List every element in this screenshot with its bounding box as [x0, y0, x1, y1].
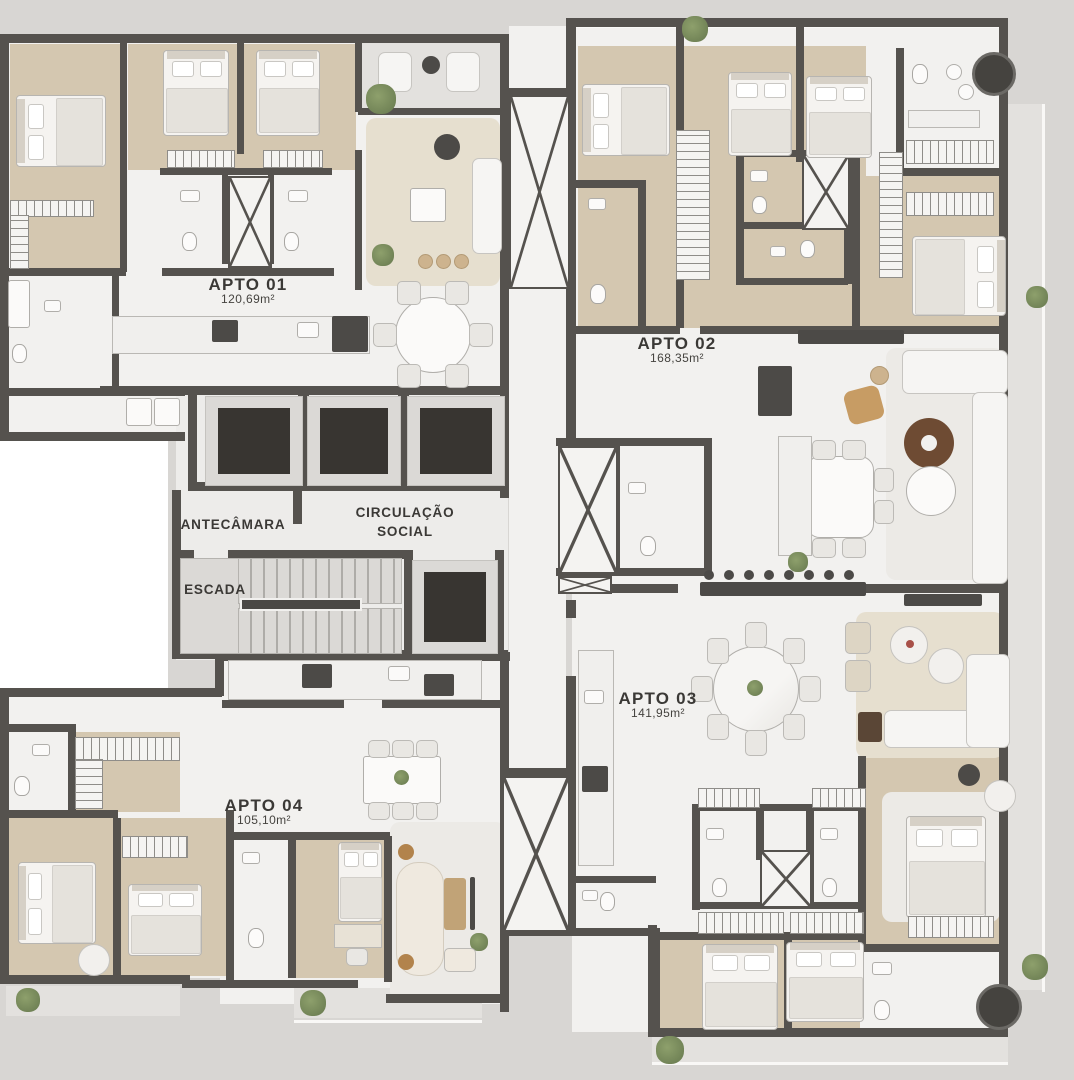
antechamber-label: ANTECÂMARA: [164, 515, 302, 535]
dining-chair: [416, 740, 438, 758]
armchair: [984, 780, 1016, 812]
coffee-table: [434, 134, 460, 160]
sink: [628, 482, 646, 494]
apto-01-label: APTO 01: [178, 276, 318, 293]
plant: [788, 552, 808, 572]
dining-chair: [812, 440, 836, 460]
pouf: [418, 254, 433, 269]
balcony-railing: [294, 1020, 482, 1023]
armchair: [446, 52, 480, 92]
circulation-label-line1: CIRCULAÇÃO: [335, 503, 475, 523]
double-bed: [18, 862, 96, 944]
closet: [790, 912, 864, 934]
dining-chair: [799, 676, 821, 702]
kitchen-cabinet: [424, 674, 454, 696]
double-bed: [16, 95, 106, 167]
dining-chair: [392, 740, 414, 758]
double-bed: [786, 942, 864, 1022]
tower-right-balcony-floor: [1008, 104, 1044, 990]
coffee-table: [410, 188, 446, 222]
plant: [300, 990, 326, 1016]
floor-plan: APTO 01 120,69m² APTO 02 168,35m² APTO 0…: [0, 0, 1074, 1080]
dining-chair: [783, 638, 805, 664]
bar-stool: [704, 570, 714, 580]
bar-stool: [824, 570, 834, 580]
toilet: [822, 878, 837, 897]
dining-chair: [373, 323, 397, 347]
bar-stool: [804, 570, 814, 580]
tv-console: [444, 878, 466, 930]
stair-handrail: [240, 598, 362, 611]
closet: [906, 192, 994, 216]
closet: [122, 836, 188, 858]
balcony-railing: [576, 25, 1002, 28]
sink: [872, 962, 892, 975]
dining-chair: [416, 802, 438, 820]
side-table: [422, 56, 440, 74]
dining-chair: [445, 281, 469, 305]
dining-chair: [707, 638, 729, 664]
toilet: [640, 536, 656, 556]
toilet: [752, 196, 767, 214]
sink: [820, 828, 838, 840]
toilet: [800, 240, 815, 258]
sink: [588, 198, 606, 210]
plant: [656, 1036, 684, 1064]
stair-landing: [180, 558, 240, 654]
dining-chair: [397, 364, 421, 388]
dining-chair: [812, 538, 836, 558]
toilet: [874, 1000, 890, 1020]
elevator-2: [307, 396, 401, 486]
bar-stool: [764, 570, 774, 580]
double-bed: [906, 816, 986, 918]
coffee-table: [904, 418, 954, 468]
bar-stool: [724, 570, 734, 580]
round-bathtub: [972, 52, 1016, 96]
double-bed: [702, 944, 778, 1030]
cooktop: [212, 320, 238, 342]
apto-02-area: 168,35m²: [607, 352, 747, 364]
dining-chair: [397, 281, 421, 305]
plant: [16, 988, 40, 1012]
desk: [334, 924, 382, 948]
double-bed: [912, 236, 1006, 316]
bar-stool: [744, 570, 754, 580]
apto-03-area: 141,95m²: [588, 707, 728, 719]
elevator-1: [205, 396, 303, 486]
apto-01-area: 120,69m²: [178, 293, 318, 305]
plant: [366, 84, 396, 114]
kitchen-cabinet: [332, 316, 368, 352]
plant: [1022, 954, 1048, 980]
toilet: [284, 232, 299, 251]
washer: [154, 398, 180, 426]
dining-table: [395, 297, 471, 373]
apto-03-label: APTO 03: [588, 690, 728, 707]
sink: [706, 828, 724, 840]
pouf: [436, 254, 451, 269]
duct-shaft: [228, 176, 272, 268]
closet: [676, 130, 710, 280]
round-bathtub: [976, 984, 1022, 1030]
dining-chair: [469, 323, 493, 347]
duct-shaft: [802, 154, 850, 230]
armchair: [444, 948, 476, 972]
pouf: [958, 764, 980, 786]
circulation-label-line2: SOCIAL: [335, 522, 475, 542]
dining-chair: [874, 500, 894, 524]
bar-stool: [844, 570, 854, 580]
toilet: [712, 878, 727, 897]
dining-chair: [368, 802, 390, 820]
duct-shaft: [509, 95, 570, 289]
closet: [812, 788, 866, 808]
sink: [180, 190, 200, 202]
dining-chair: [368, 740, 390, 758]
kitchen-counter: [578, 650, 614, 866]
closet: [167, 150, 235, 168]
balcony-railing: [1042, 104, 1045, 992]
stair-flight-lower: [238, 608, 402, 654]
closet: [879, 152, 903, 278]
closet: [10, 215, 29, 269]
closet: [908, 916, 994, 938]
apto-02-label: APTO 02: [607, 335, 747, 352]
dining-chair: [842, 538, 866, 558]
sofa: [472, 158, 502, 254]
dining-chair: [842, 440, 866, 460]
background-patch: [0, 441, 168, 691]
media-console: [904, 594, 982, 606]
plant: [1026, 286, 1048, 308]
sofa: [902, 350, 1008, 394]
sink: [582, 890, 598, 901]
dining-chair: [445, 364, 469, 388]
toilet: [590, 284, 606, 304]
bar-counter: [700, 582, 866, 596]
tower-bottom-terrace-floor: [652, 1037, 1008, 1065]
sofa-chaise: [972, 392, 1008, 584]
sink: [770, 246, 786, 257]
armchair: [78, 944, 110, 976]
toilet: [248, 928, 264, 948]
sink: [750, 170, 768, 182]
red-flower: [906, 640, 914, 648]
duct-shaft: [558, 576, 612, 594]
closet: [263, 150, 323, 168]
plant: [372, 244, 394, 266]
duct-shaft: [558, 446, 618, 574]
tv: [470, 877, 475, 930]
sink: [388, 666, 410, 681]
plant: [682, 16, 708, 42]
double-bed: [582, 84, 670, 156]
centerpiece-plant: [747, 680, 763, 696]
basin: [946, 64, 962, 80]
closet: [698, 788, 760, 808]
side-table: [398, 954, 414, 970]
closet: [906, 140, 994, 164]
centerpiece-plant: [394, 770, 409, 785]
sink: [32, 744, 50, 756]
sink: [288, 190, 308, 202]
stairs-label: ESCADA: [160, 580, 270, 600]
cooktop: [302, 664, 332, 688]
kitchen-cabinet: [758, 366, 792, 416]
toilet: [600, 892, 615, 911]
single-bed: [806, 76, 872, 158]
dining-chair: [783, 714, 805, 740]
sink: [242, 852, 260, 864]
duct-shaft: [760, 850, 812, 908]
closet: [75, 759, 103, 809]
dining-chair: [874, 468, 894, 492]
washer: [126, 398, 152, 426]
desk-chair: [346, 948, 368, 966]
sofa-chaise: [966, 654, 1010, 748]
kitchen-island: [778, 436, 812, 556]
elevator-4: [412, 560, 498, 654]
closet: [75, 737, 180, 761]
bar-stool: [784, 570, 794, 580]
cooktop: [582, 766, 608, 792]
balcony-railing: [652, 1062, 1008, 1065]
single-bed: [728, 72, 792, 156]
single-bed: [163, 50, 229, 136]
closet: [698, 912, 784, 934]
apto-04-area: 105,10m²: [194, 814, 334, 826]
armchair: [845, 660, 871, 692]
media-console: [798, 330, 904, 344]
bar-stools: [704, 570, 864, 580]
single-bed: [256, 50, 320, 136]
basin: [958, 84, 974, 100]
toilet: [12, 344, 27, 363]
dining-table: [806, 456, 874, 538]
single-bed: [338, 842, 382, 922]
toilet: [182, 232, 197, 251]
toilet: [14, 776, 30, 796]
sink: [44, 300, 61, 312]
apto-04-label: APTO 04: [194, 797, 334, 814]
dining-chair: [745, 730, 767, 756]
pouf: [870, 366, 889, 385]
vanity-counter: [908, 110, 980, 128]
duct-shaft: [502, 776, 570, 932]
flower-armchair: [928, 648, 964, 684]
coffee-table: [858, 712, 882, 742]
double-bed: [128, 884, 202, 956]
pouf: [454, 254, 469, 269]
side-table: [398, 844, 414, 860]
toilet: [912, 64, 928, 84]
armchair: [845, 622, 871, 654]
elevator-3: [407, 396, 505, 486]
dining-chair: [392, 802, 414, 820]
bathtub: [8, 280, 30, 328]
side-table: [906, 466, 956, 516]
sink: [297, 322, 319, 338]
dining-chair: [745, 622, 767, 648]
